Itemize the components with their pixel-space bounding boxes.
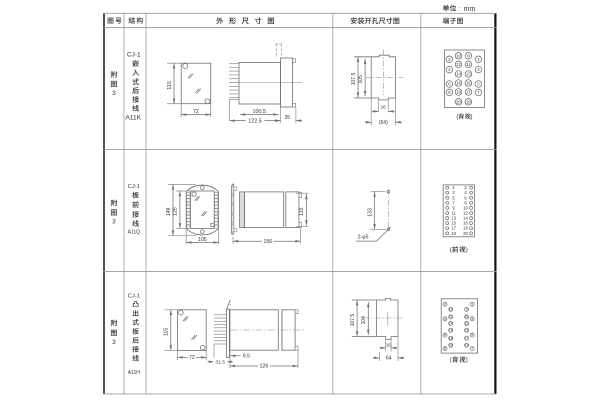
svg-text:72: 72	[189, 355, 195, 361]
svg-text:10: 10	[456, 53, 461, 58]
svg-text:100.5: 100.5	[253, 109, 267, 115]
svg-text:4: 4	[444, 317, 446, 321]
svg-text:13: 13	[466, 72, 471, 77]
svg-text:12: 12	[449, 315, 453, 319]
svg-text:17: 17	[466, 90, 471, 95]
svg-text:(64): (64)	[379, 120, 388, 126]
svg-text:A11Q: A11Q	[128, 230, 141, 236]
svg-text:A11K: A11K	[125, 114, 141, 121]
svg-text:19: 19	[466, 99, 471, 104]
svg-text:35: 35	[284, 115, 290, 121]
svg-text:126: 126	[260, 364, 269, 370]
svg-text:3: 3	[471, 317, 473, 321]
svg-text:): )	[466, 358, 468, 364]
svg-text:149: 149	[166, 207, 172, 216]
svg-text:13: 13	[465, 322, 469, 326]
svg-text:CJ-1: CJ-1	[128, 294, 140, 300]
svg-text:64: 64	[386, 355, 392, 361]
svg-text:105: 105	[358, 75, 364, 84]
svg-text:(: (	[450, 248, 452, 254]
svg-text:18: 18	[449, 336, 453, 340]
svg-text:3: 3	[112, 339, 116, 346]
svg-text:20: 20	[449, 343, 453, 347]
svg-text:): )	[466, 248, 468, 254]
svg-text:156: 156	[263, 239, 272, 245]
svg-text:CJ-1: CJ-1	[127, 52, 141, 59]
svg-text:(: (	[450, 358, 452, 364]
svg-text:A11H: A11H	[128, 370, 141, 376]
svg-text:9: 9	[466, 307, 468, 311]
svg-text:19: 19	[465, 343, 469, 347]
svg-text:105: 105	[198, 237, 207, 243]
svg-text:14: 14	[449, 322, 453, 326]
svg-text:14: 14	[456, 72, 461, 77]
svg-text:31.5: 31.5	[215, 359, 225, 365]
svg-text:115: 115	[167, 81, 173, 90]
svg-text::: :	[458, 6, 460, 13]
svg-text:11: 11	[465, 315, 469, 319]
svg-text:115: 115	[299, 207, 305, 215]
svg-text:16: 16	[449, 328, 453, 332]
svg-text:CJ-1: CJ-1	[128, 184, 140, 190]
svg-text:9.5: 9.5	[243, 354, 250, 360]
svg-text:72: 72	[193, 109, 199, 115]
svg-text:20: 20	[463, 231, 468, 236]
svg-text:6: 6	[444, 333, 446, 337]
svg-text:20: 20	[456, 99, 461, 104]
svg-text:133: 133	[367, 208, 373, 217]
svg-text:2: 2	[444, 302, 446, 306]
svg-text:(: (	[456, 114, 458, 120]
svg-text:107.5: 107.5	[350, 314, 356, 327]
svg-text:7: 7	[471, 347, 473, 351]
svg-text:2-φ5: 2-φ5	[358, 235, 369, 241]
svg-text:15: 15	[466, 81, 471, 86]
svg-text:8: 8	[444, 347, 446, 351]
svg-text:16: 16	[456, 81, 461, 86]
svg-text:5: 5	[471, 333, 473, 337]
svg-text:17: 17	[465, 336, 469, 340]
svg-text:16: 16	[386, 342, 391, 347]
svg-text:): )	[471, 114, 473, 120]
svg-text:11: 11	[466, 62, 471, 67]
svg-text:16: 16	[381, 105, 387, 110]
svg-text:mm: mm	[464, 6, 476, 13]
svg-text:18: 18	[456, 90, 461, 95]
svg-text:12: 12	[456, 62, 461, 67]
svg-text:15: 15	[465, 328, 469, 332]
svg-text:3: 3	[112, 219, 116, 226]
svg-text:107.5: 107.5	[351, 73, 357, 86]
svg-text:19: 19	[451, 231, 456, 236]
svg-text:1: 1	[471, 302, 473, 306]
svg-text:115: 115	[164, 328, 170, 336]
svg-text:125: 125	[173, 207, 179, 216]
svg-text:10: 10	[449, 307, 453, 311]
svg-text:122.5: 122.5	[248, 118, 262, 124]
svg-text:3: 3	[112, 90, 116, 97]
svg-text:104: 104	[361, 316, 367, 325]
